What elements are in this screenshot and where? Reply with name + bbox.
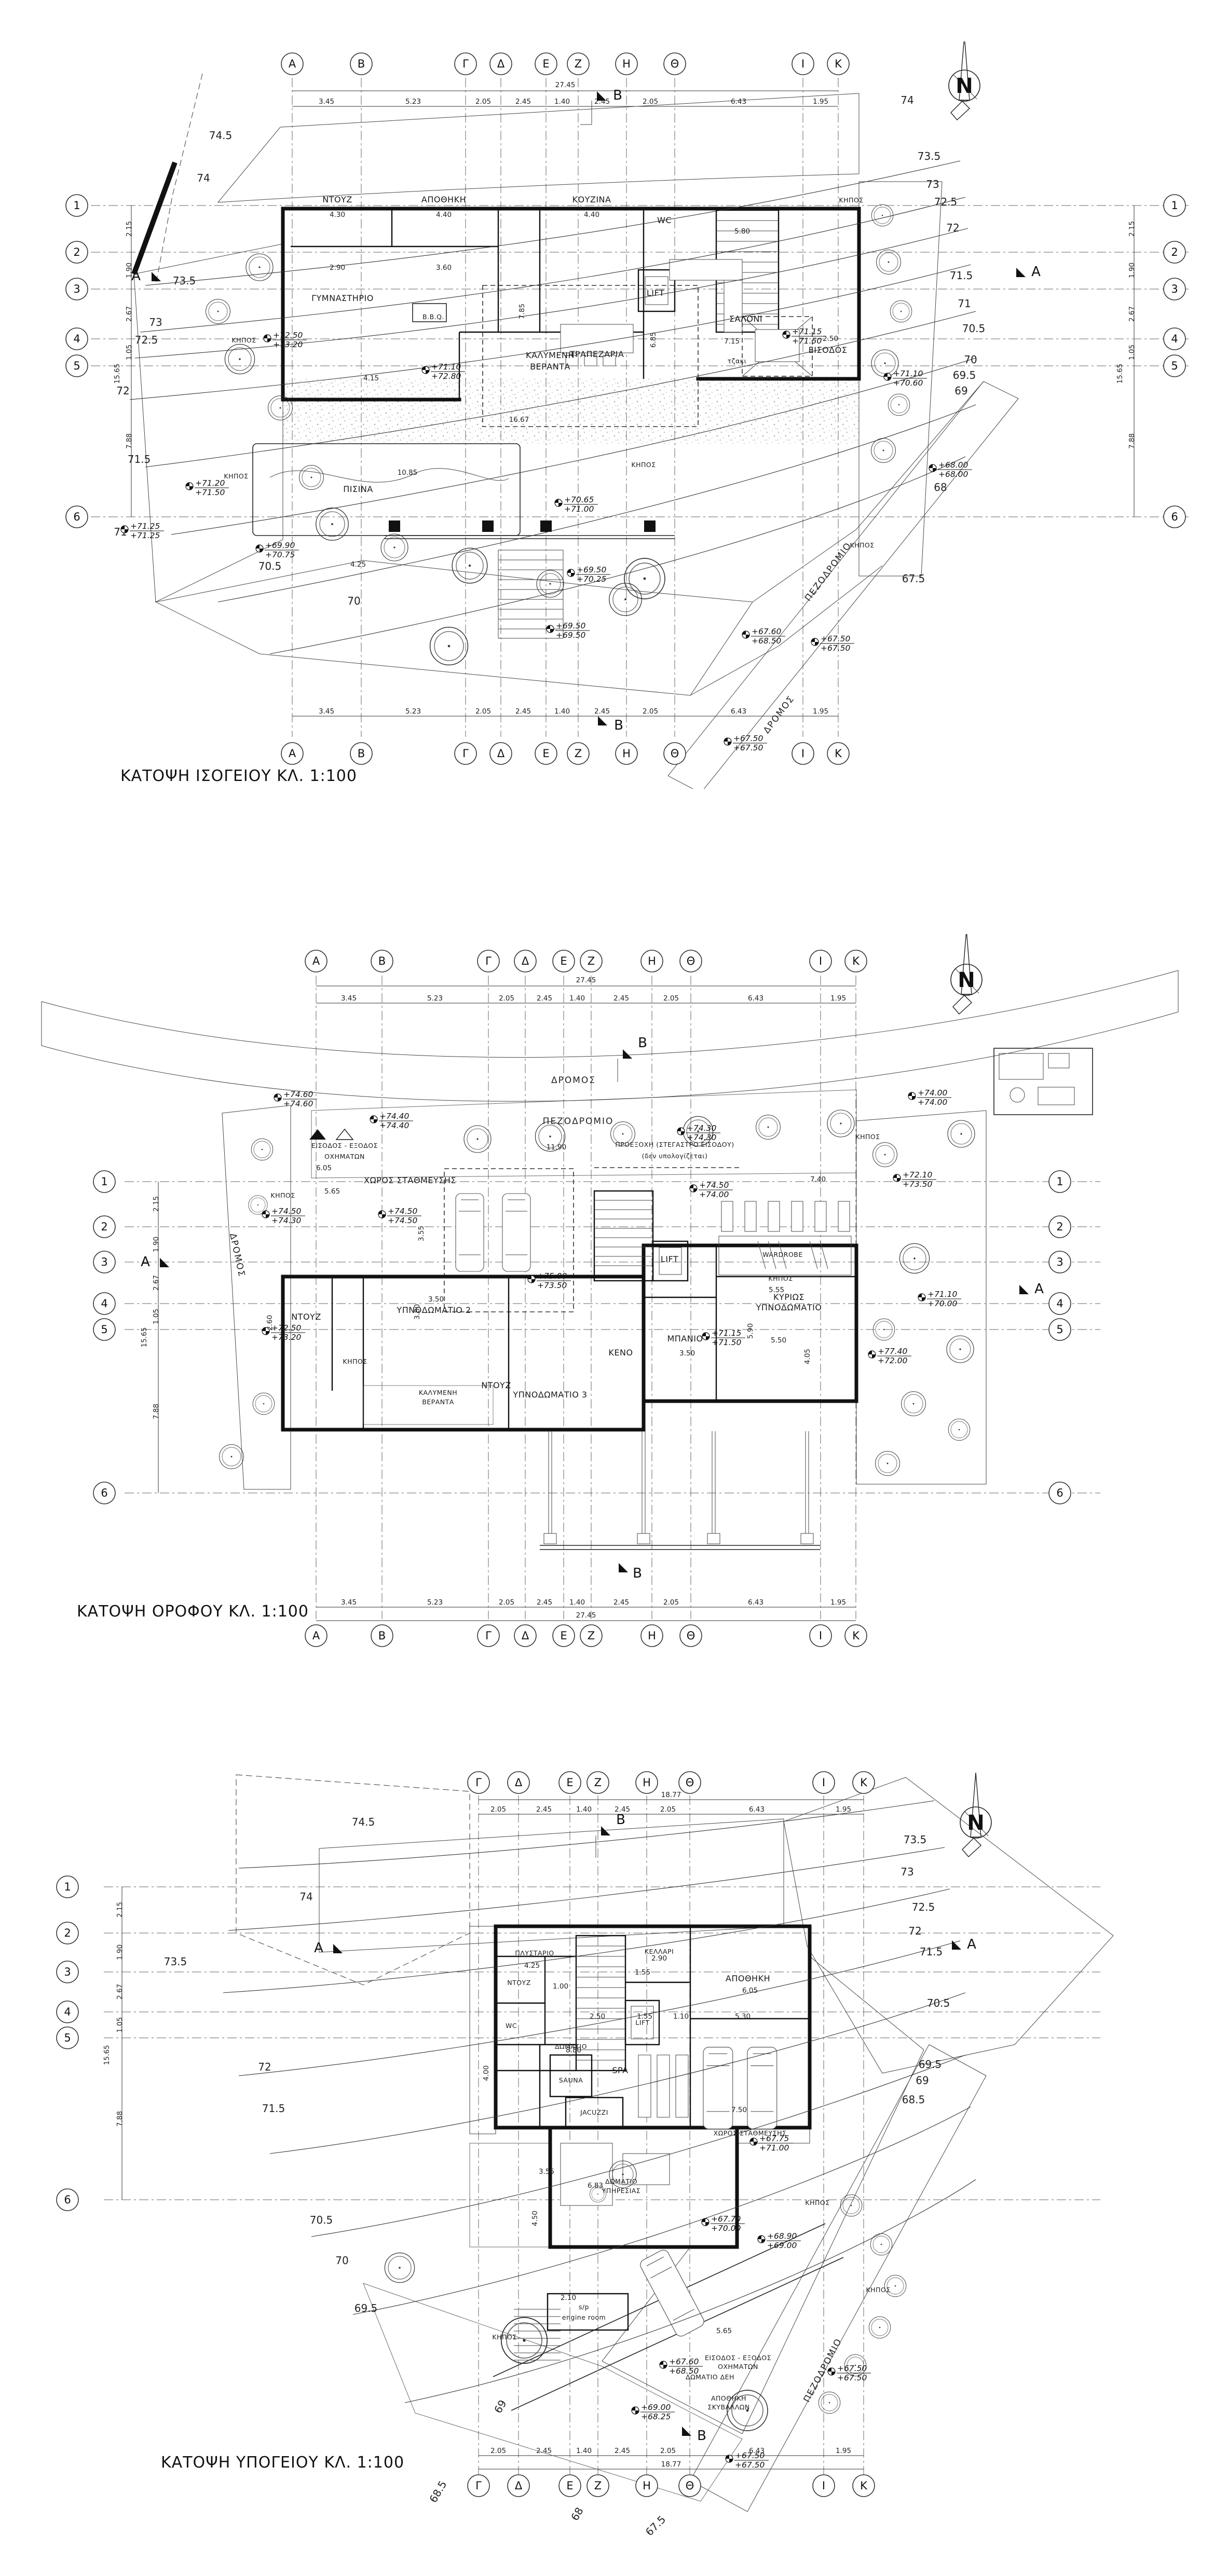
north-label: N	[958, 968, 975, 992]
contour-label: 74.5	[352, 1816, 375, 1828]
room-spa: SPA	[612, 2065, 628, 2075]
left-row-dims: 2.151.902.671.057.88	[125, 221, 133, 449]
room-parking: ΧΩΡΟΣ ΣΤΑΘΜΕΥΣΗΣ	[364, 1175, 456, 1185]
dim: 11.90	[547, 1143, 567, 1152]
grid-number: 1	[73, 199, 80, 212]
grid-numbers-left: 123456	[93, 1171, 115, 1504]
room-veranta-1: ΚΑΛΥΜΕΝΗ	[526, 350, 575, 360]
elevation-bottom: +73.50	[903, 1180, 932, 1189]
grid-number: 6	[73, 511, 80, 523]
elevation-bottom: +74.60	[283, 1099, 313, 1108]
dim: 2.45	[515, 98, 531, 106]
elevation-top: +74.50	[699, 1181, 729, 1190]
elevation-top: +67.70	[711, 2214, 741, 2224]
grid-letter: Γ	[475, 1776, 482, 1789]
dim: 5.23	[405, 98, 421, 106]
top-dims: 3.455.232.052.451.402.452.056.431.95	[341, 994, 846, 1003]
grid-numbers-right: 123456	[1164, 195, 1185, 528]
ground-floor-plan: ΑΒΓΔΕΖΗΘΙΚ ΑΒΓΔΕΖΗΘΙΚ 123456 123456 3.45…	[0, 42, 1214, 789]
room-kipos: ΚΗΠΟΣ	[343, 1358, 367, 1365]
dim: 5.65	[324, 1187, 340, 1196]
sidewalk-band	[690, 2045, 986, 2512]
dim: 2.67	[152, 1275, 160, 1291]
contour-label: 68	[568, 2505, 586, 2523]
dim: 2.45	[537, 994, 552, 1003]
grid-number: 3	[1171, 283, 1178, 295]
grid-letter: Ε	[542, 58, 549, 70]
grid-letter: Ι	[819, 955, 822, 967]
dim: 2.15	[1128, 221, 1136, 237]
basement-plan: ΠΕΖΟΔΡΟΜΙΟ	[0, 1712, 1214, 2576]
elevation-bottom: +74.50	[388, 1216, 417, 1225]
plot-boundary	[156, 74, 202, 285]
grid-letter: Η	[622, 747, 631, 760]
dim: 3.55	[417, 1226, 426, 1241]
left-row-dims: 2.151.902.671.057.88	[152, 1196, 160, 1419]
room-sauna-1: ΔΩΜΑΤΙΟ	[555, 2043, 587, 2050]
bottom-dims: 2.052.451.402.452.056.431.95	[490, 2447, 851, 2455]
bottom-total-dim: 27.45	[576, 1611, 596, 1620]
grid-letter: Ι	[801, 58, 804, 70]
earth-hatch-top	[319, 1819, 784, 1952]
contour-label: 67.5	[902, 572, 925, 585]
garden-right	[602, 1956, 924, 2434]
grid-number: 3	[64, 1966, 71, 1978]
elevation-top: +69.50	[556, 621, 585, 631]
dim: 3.45	[341, 1598, 357, 1607]
room-kipos: ΚΗΠΟΣ	[270, 1191, 295, 1199]
benchmark-icon	[555, 499, 562, 506]
dim: 7.88	[116, 2111, 124, 2127]
elevation-bottom: +73.50	[537, 1281, 567, 1290]
contour-label: 72	[908, 1925, 921, 1937]
bottom-total-dim: 18.77	[661, 2460, 681, 2469]
grid-number: 3	[101, 1256, 107, 1268]
bottom-dims: 3.455.232.052.451.402.452.056.431.95	[341, 1598, 846, 1607]
dim: 2.45	[515, 707, 531, 716]
car	[747, 2047, 777, 2129]
grid-letter: Ι	[819, 1629, 822, 1642]
dim: 2.05	[499, 994, 514, 1003]
section-a-right: A	[1031, 264, 1041, 280]
benchmark-icon	[262, 1327, 269, 1335]
grid-letter: Κ	[852, 955, 860, 967]
room-master-1: ΚΥΡΙΩΣ	[773, 1292, 804, 1302]
grid-number: 2	[73, 246, 80, 258]
room-labels: ΧΩΡΟΣ ΣΤΑΘΜΕΥΣΗΣ ΕΙΣΟΔΟΣ - ΕΞΟΔΟΣ ΟΧΗΜΑΤ…	[270, 1133, 880, 1406]
dim: 3.55	[539, 2168, 554, 2176]
dim: 4.30	[330, 211, 345, 219]
room-entry-1: ΕΙΣΟΔΟΣ - ΕΞΟΔΟΣ	[311, 1142, 378, 1149]
elevation-top: +67.50	[735, 2451, 765, 2460]
dim: 4.25	[350, 560, 366, 569]
dim: 3.45	[341, 994, 357, 1003]
room-saloni: ΣΑΛΟΝΙ	[729, 314, 762, 324]
elevation-top: +71.10	[927, 1290, 957, 1299]
elevation-top: +72.10	[903, 1170, 932, 1180]
contour-label: 72	[116, 385, 129, 397]
grid-number: 2	[101, 1221, 107, 1233]
grid-letter: Δ	[515, 1776, 523, 1789]
building-walls	[283, 209, 859, 400]
room-kellari: ΚΕΛΛΑΡΙ	[645, 1948, 674, 1955]
dim: 1.05	[1128, 345, 1136, 360]
room-garbage-2: ΣΚΥΒΑΛΛΩΝ	[707, 2403, 749, 2411]
dim: 6.43	[749, 1805, 765, 1814]
grid-letter: Θ	[671, 747, 679, 760]
grid-number: 5	[1171, 360, 1178, 372]
dim: 4.40	[436, 211, 452, 219]
interior-dims: 4.251.002.901.556.052.501.551.105.308.80…	[482, 1954, 758, 2335]
benchmark-icon	[378, 1211, 386, 1218]
grid-letter: Ζ	[588, 955, 595, 967]
contour-label: 73	[901, 1866, 913, 1878]
room-veranta-2: ΒΕΡΑΝΤΑ	[422, 1398, 454, 1406]
contour-label: 73.5	[173, 275, 196, 287]
grid-letter: Κ	[852, 1629, 860, 1642]
room-gym: ΓΥΜΝΑΣΤΗΡΙΟ	[311, 293, 374, 303]
elevation-top: +72.50	[273, 331, 303, 340]
dim: 5.65	[716, 2327, 732, 2335]
room-sauna-2: SAUNA	[559, 2076, 583, 2084]
dim: 2.15	[116, 1902, 124, 1917]
dim: 2.45	[613, 1598, 629, 1607]
dim: 2.45	[536, 2447, 552, 2455]
room-ntouz2: ΝΤΟΥΖ	[481, 1380, 511, 1390]
dim: 2.05	[663, 994, 679, 1003]
grid-letter: Α	[312, 1629, 320, 1642]
elevation-top: +67.50	[733, 734, 763, 743]
basement-title: ΚΑΤΟΨΗ ΥΠΟΓΕΙΟΥ ΚΛ. 1:100	[161, 2454, 404, 2472]
right-total-dim: 15.65	[1116, 364, 1124, 384]
dim: 1.95	[836, 2447, 851, 2455]
contour-label: 74.5	[209, 129, 233, 142]
benchmark-icon	[256, 545, 263, 552]
grid-number: 6	[1171, 511, 1178, 523]
earth-hatch-right	[784, 1777, 1113, 2073]
elevation-top: +77.40	[878, 1347, 907, 1356]
earth-hatch-left	[470, 1926, 496, 2134]
elevation-top: +71.10	[893, 369, 923, 378]
car	[703, 2047, 733, 2129]
dim: 2.15	[152, 1196, 160, 1212]
grid-letters-bottom: ΑΒΓΔΕΖΗΘΙΚ	[305, 1625, 867, 1647]
grid-letter: Δ	[497, 58, 505, 70]
elevation-bottom: +68.50	[752, 636, 781, 646]
benchmark-icon	[702, 1333, 710, 1340]
elevation-bottom: +71.00	[564, 504, 594, 514]
elevation-top: +67.50	[837, 2364, 867, 2373]
dim: 1.05	[125, 345, 133, 360]
room-labels: ΝΤΟΥΖ ΑΠΟΘΗΚΗ ΚΟΥΖΙΝΑ WC LIFT ΓΥΜΝΑΣΤΗΡΙ…	[224, 195, 874, 549]
room-engine-2: engine room	[562, 2313, 606, 2321]
benchmark-icon	[811, 638, 819, 646]
elevation-bottom: +73.20	[273, 340, 303, 349]
contour-label: 69	[916, 2074, 929, 2087]
elevation-top: +68.00	[938, 460, 968, 470]
grid-number: 4	[101, 1297, 107, 1310]
room-jacuzzi: JACUZZI	[580, 2108, 608, 2116]
contour-label: 72	[258, 2061, 271, 2073]
garden-left	[222, 1105, 291, 1489]
terrace-strip	[283, 379, 859, 444]
pool	[253, 444, 520, 536]
dim: 4.15	[363, 374, 379, 382]
room-banio: ΜΠΑΝΙΟ	[667, 1334, 703, 1344]
grid-number: 1	[1171, 199, 1178, 212]
contour-label: 70	[335, 2254, 348, 2267]
room-veranta-2: ΒΕΡΑΝΤΑ	[530, 362, 570, 372]
room-kipos: ΚΗΠΟΣ	[866, 2286, 890, 2294]
contour-label: 69	[954, 385, 967, 397]
grid-number: 2	[1171, 246, 1178, 258]
grid-number: 6	[1056, 1487, 1063, 1499]
elevation-top: +74.30	[687, 1123, 716, 1133]
dim: 2.05	[643, 98, 658, 106]
contour-label: 70.5	[258, 560, 282, 572]
grid-number: 5	[73, 360, 80, 372]
grid-letter: Ε	[560, 955, 567, 967]
benchmark-icon	[422, 366, 429, 374]
dim: 5.80	[734, 227, 750, 236]
room-kipos: ΚΗΠΟΣ	[631, 461, 656, 469]
grid-letters-top: ΑΒΓΔΕΖΗΘΙΚ	[281, 53, 849, 75]
contour-label: 69.5	[354, 2302, 378, 2314]
room-trapezaria: ΤΡΑΠΕΖΑΡΙΑ	[569, 349, 624, 359]
dim: 1.90	[152, 1237, 160, 1252]
contour-labels-bottom: 6968.56867.5	[427, 2397, 668, 2538]
elevation-top: +74.50	[388, 1207, 417, 1216]
grid-letter: Ζ	[594, 2479, 602, 2492]
grid-letter: Β	[378, 955, 386, 967]
dim: 6.85	[649, 332, 658, 348]
dim: 2.67	[1128, 306, 1136, 322]
dim: 1.55	[635, 1968, 650, 1977]
benchmark-icon	[262, 1211, 269, 1218]
benchmark-icon	[893, 1174, 901, 1182]
dim: 3.45	[319, 98, 334, 106]
dim: 1.40	[554, 98, 570, 106]
elevation-top: +69.00	[641, 2403, 671, 2412]
dim: 5.90	[746, 1323, 755, 1339]
benchmark-icon	[677, 1128, 685, 1135]
top-dims: 2.052.451.402.452.056.431.95	[490, 1805, 851, 1814]
grid-letter: Κ	[835, 58, 842, 70]
grid-letter: Ι	[822, 1776, 825, 1789]
elevation-bottom: +67.50	[837, 2373, 867, 2382]
grid-letter: Δ	[497, 747, 505, 760]
dim: 16.67	[509, 416, 529, 424]
grid-letter: Γ	[462, 58, 469, 70]
room-veranta-1: ΚΑΛΥΜΕΝΗ	[419, 1389, 457, 1396]
room-apothiki: ΑΠΟΘΗΚΗ	[726, 1974, 770, 1983]
left-total-dim: 15.65	[103, 2045, 111, 2065]
grid-letter: Δ	[522, 1629, 529, 1642]
grid-letters-bottom: ΓΔΕΖΗΘΙΚ	[468, 2475, 875, 2497]
elevation-bottom: +71.25	[130, 531, 160, 540]
grid-letter: Β	[378, 1629, 386, 1642]
dim: 1.40	[554, 707, 570, 716]
room-master-2: ΥΠΝΟΔΩΜΑΤΙΟ	[756, 1303, 822, 1312]
grid-letter: Γ	[485, 955, 492, 967]
grid-numbers-left: 123456	[66, 195, 88, 528]
elevation-bottom: +69.50	[556, 631, 585, 640]
room-kipos: ΚΗΠΟΣ	[805, 2199, 829, 2207]
grid-letter: Θ	[686, 1776, 694, 1789]
room-kipos: ΚΗΠΟΣ	[839, 196, 863, 204]
room-keno: ΚΕΝΟ	[608, 1348, 633, 1358]
dim: 6.43	[731, 707, 746, 716]
elevation-top: +71.10	[431, 362, 461, 372]
grid-lines-horizontal	[91, 205, 1189, 517]
contour-label: 69.5	[919, 2058, 942, 2071]
contour-label: 69.5	[953, 369, 976, 381]
room-tzaki: τζακι	[728, 357, 747, 365]
road-band	[42, 970, 1178, 1101]
contour-label: 71.5	[128, 453, 151, 465]
elevation-top: +71.20	[195, 478, 225, 488]
elevation-bottom: +74.00	[699, 1190, 729, 1199]
grid-letters-top: ΓΔΕΖΗΘΙΚ	[468, 1772, 875, 1793]
garden-left	[470, 2143, 550, 2247]
contour-label: 71.5	[920, 1945, 943, 1958]
benchmark-icon	[884, 373, 891, 380]
dromos-label: ΔΡΟΜΟΣ	[761, 694, 797, 736]
room-ntouz: ΝΤΟΥΖ	[507, 1979, 531, 1986]
room-eisodos: ΕΙΣΟΔΟΣ	[809, 345, 848, 355]
section-b-bottom: B	[614, 718, 623, 733]
benchmark-icon	[918, 1294, 925, 1301]
boundary-wall	[134, 162, 175, 274]
elevation-top: +71.25	[130, 522, 160, 531]
dim: 7.40	[810, 1175, 826, 1184]
section-a-left: A	[141, 1254, 150, 1270]
grid-number: 1	[64, 1881, 71, 1893]
grid-number: 5	[1056, 1323, 1063, 1336]
top-total-dim: 27.45	[555, 81, 576, 89]
grid-letter: Κ	[860, 1776, 868, 1789]
dim: 2.05	[475, 707, 491, 716]
grid-letter: Ε	[542, 747, 549, 760]
elevation-top: +72.50	[271, 1323, 301, 1333]
grid-letter: Δ	[515, 2479, 523, 2492]
pergola	[540, 1431, 820, 1550]
benchmark-icon	[567, 569, 575, 577]
car	[502, 1194, 530, 1271]
contour-label: 73	[149, 316, 162, 328]
room-kipos: ΚΗΠΟΣ	[231, 336, 256, 344]
ground-floor-drawing: ΑΒΓΔΕΖΗΘΙΚ ΑΒΓΔΕΖΗΘΙΚ 123456 123456 3.45…	[0, 42, 1214, 789]
elevation-bottom: +71.50	[792, 336, 822, 346]
elevation-top: +75.00	[537, 1271, 567, 1281]
dim: 1.95	[830, 1598, 846, 1607]
grid-number: 3	[1056, 1256, 1063, 1268]
contour-label: 74	[901, 94, 913, 106]
dim: 1.40	[569, 1598, 585, 1607]
elevation-bottom: +68.00	[938, 470, 968, 479]
grid-numbers-right: 123456	[1049, 1171, 1071, 1504]
section-a-left: A	[131, 268, 141, 284]
dim: 5.30	[735, 2012, 751, 2021]
benchmark-icon	[702, 2218, 709, 2226]
benchmark-icon	[726, 2455, 733, 2462]
room-service-1: ΔΩΜΑΤΙΟ	[605, 2177, 637, 2185]
grid-letter: Ι	[801, 747, 804, 760]
dim: 7.88	[125, 433, 133, 449]
room-engine-1: s/p	[579, 2303, 589, 2311]
dim: 6.83	[588, 2182, 603, 2190]
dim: 4.25	[524, 1962, 540, 1970]
contour-label: 67.5	[643, 2513, 668, 2538]
elevation-bottom: +67.50	[733, 743, 763, 752]
elevation-bottom: +70.60	[893, 378, 923, 388]
upper-floor-plan: ΔΡΟΜΟΣ ΠΕΖΟΔΡΟΜΙΟ ΔΡΟΜΟΣ	[0, 934, 1214, 1661]
grid-letter: Β	[358, 747, 365, 760]
dim: 2.45	[537, 1598, 552, 1607]
contour-label: 69	[492, 2397, 509, 2415]
dim: 5.23	[427, 994, 443, 1003]
contour-label: 73	[926, 178, 939, 190]
dim: 1.10	[673, 2012, 689, 2021]
room-wc: WC	[657, 215, 672, 225]
room-entry-2: ΟΧΗΜΑΤΩΝ	[718, 2363, 758, 2371]
elevation-bottom: +67.50	[735, 2460, 765, 2470]
grid-letter: Δ	[522, 955, 529, 967]
elevation-top: +70.65	[564, 495, 594, 504]
benchmark-icon	[868, 1351, 876, 1358]
grid-number: 4	[64, 2006, 71, 2018]
grid-number: 4	[1056, 1297, 1063, 1310]
elevation-bottom: +71.00	[759, 2143, 789, 2153]
grid-letter: Β	[358, 58, 365, 70]
contour-label: 71	[958, 297, 971, 310]
benchmark-icon	[186, 483, 193, 490]
grid-letter: Θ	[671, 58, 679, 70]
contour-label: 70	[964, 353, 977, 366]
dim: 2.45	[594, 707, 610, 716]
grid-letter: Κ	[835, 747, 842, 760]
grid-letter: Ζ	[594, 1776, 602, 1789]
elevation-bottom: +70.00	[711, 2224, 741, 2233]
dim: 2.05	[660, 2447, 676, 2455]
right-row-dims: 2.151.902.671.057.88	[1128, 221, 1136, 449]
grid-number: 2	[1056, 1221, 1063, 1233]
dim: 1.95	[830, 994, 846, 1003]
room-kipos: ΚΗΠΟΣ	[768, 1275, 793, 1282]
dim: 4.00	[482, 2065, 490, 2081]
elevation-top: +71.15	[712, 1328, 741, 1338]
contour-label: 72.5	[135, 334, 158, 346]
dim: 1.40	[576, 1805, 592, 1814]
room-kipos: ΚΗΠΟΣ	[850, 541, 874, 549]
dim: 1.40	[576, 2447, 592, 2455]
basement-drawing: ΠΕΖΟΔΡΟΜΙΟ	[0, 1712, 1214, 2576]
benchmark-icon	[783, 331, 790, 338]
grid-number: 1	[101, 1175, 107, 1188]
grid-letter: Ζ	[575, 747, 582, 760]
contour-label: 72.5	[912, 1901, 935, 1913]
benchmark-icon	[929, 464, 936, 472]
grid-letter: Ε	[566, 2479, 573, 2492]
elevation-bottom: +70.75	[265, 550, 295, 559]
dim: 2.50	[823, 335, 838, 343]
dim: 10.85	[398, 469, 418, 477]
grid-letter: Ζ	[588, 1629, 595, 1642]
room-lift: LIFT	[647, 288, 664, 298]
benchmark-icon	[742, 631, 749, 638]
bottom-dims: 3.455.232.052.451.402.452.056.431.95	[319, 707, 828, 716]
upper-floor-drawing: ΔΡΟΜΟΣ ΠΕΖΟΔΡΟΜΙΟ ΔΡΟΜΟΣ	[0, 934, 1214, 1661]
